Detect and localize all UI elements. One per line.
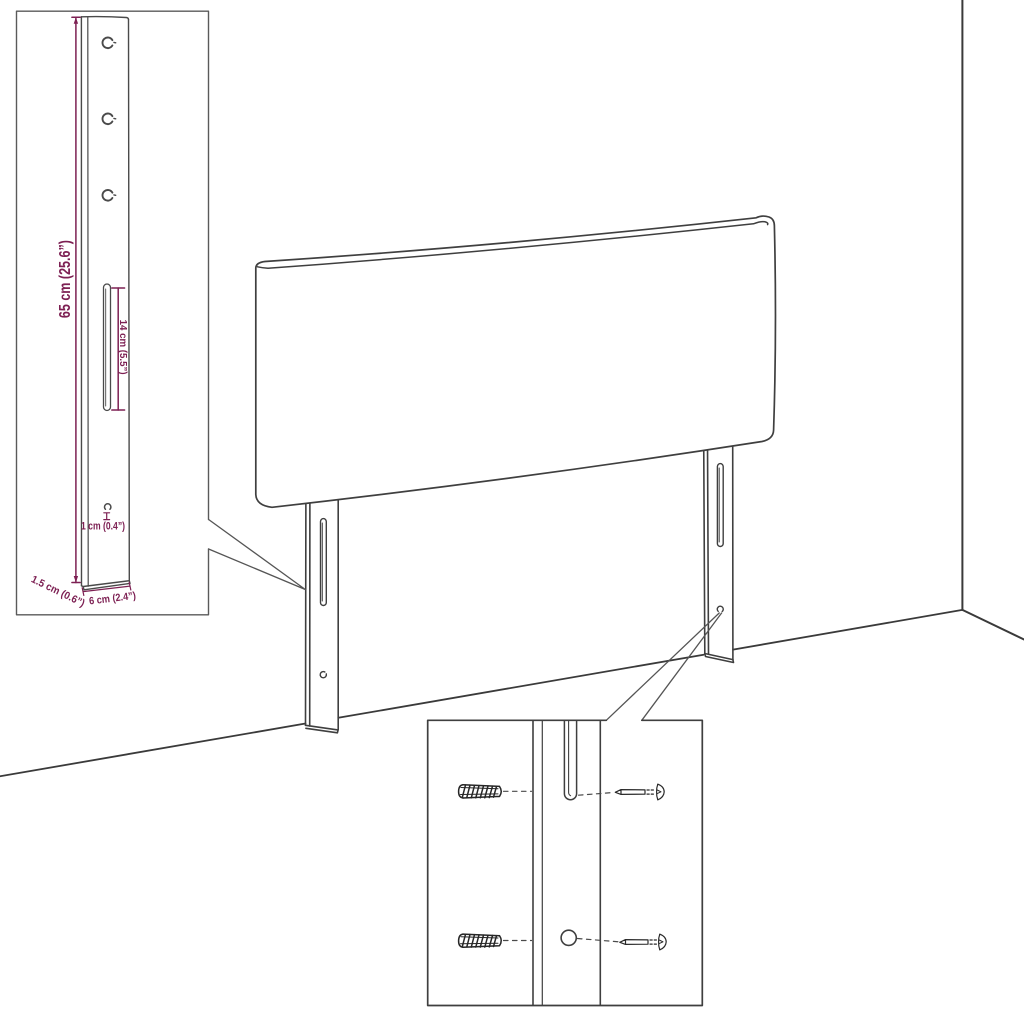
svg-text:65 cm (25.6”): 65 cm (25.6”) bbox=[57, 240, 74, 318]
svg-text:1 cm (0.4”): 1 cm (0.4”) bbox=[81, 520, 125, 532]
svg-text:1.5 cm (0.6”): 1.5 cm (0.6”) bbox=[29, 573, 86, 609]
svg-text:14 cm (5.5”): 14 cm (5.5”) bbox=[117, 320, 128, 375]
svg-text:6 cm (2.4”): 6 cm (2.4”) bbox=[88, 590, 136, 608]
